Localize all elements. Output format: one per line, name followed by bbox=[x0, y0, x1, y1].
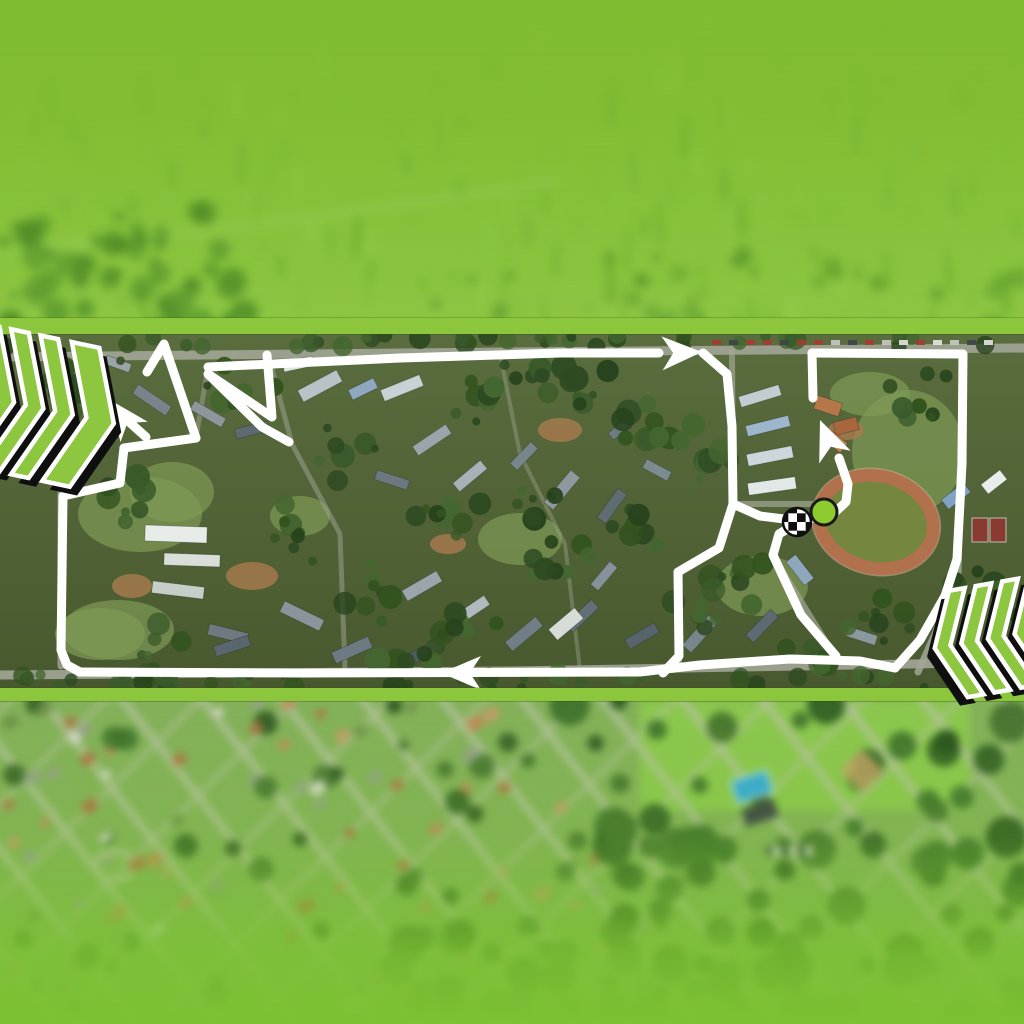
green-fade-overlay bbox=[0, 701, 1024, 1024]
poster-canvas bbox=[0, 0, 1024, 1024]
right-chevrons-decoration bbox=[938, 582, 1024, 698]
top-green-tint bbox=[0, 0, 1024, 334]
start-dot-marker bbox=[811, 499, 837, 525]
route-map-photo bbox=[0, 334, 1024, 688]
bottom-green-band bbox=[0, 688, 1024, 701]
bottom-aerial-photo bbox=[0, 701, 1024, 1024]
top-aerial-photo bbox=[0, 0, 1024, 334]
left-chevrons-decoration bbox=[0, 335, 118, 499]
top-green-band bbox=[0, 318, 1024, 334]
route-segment-east-upper bbox=[812, 353, 813, 398]
